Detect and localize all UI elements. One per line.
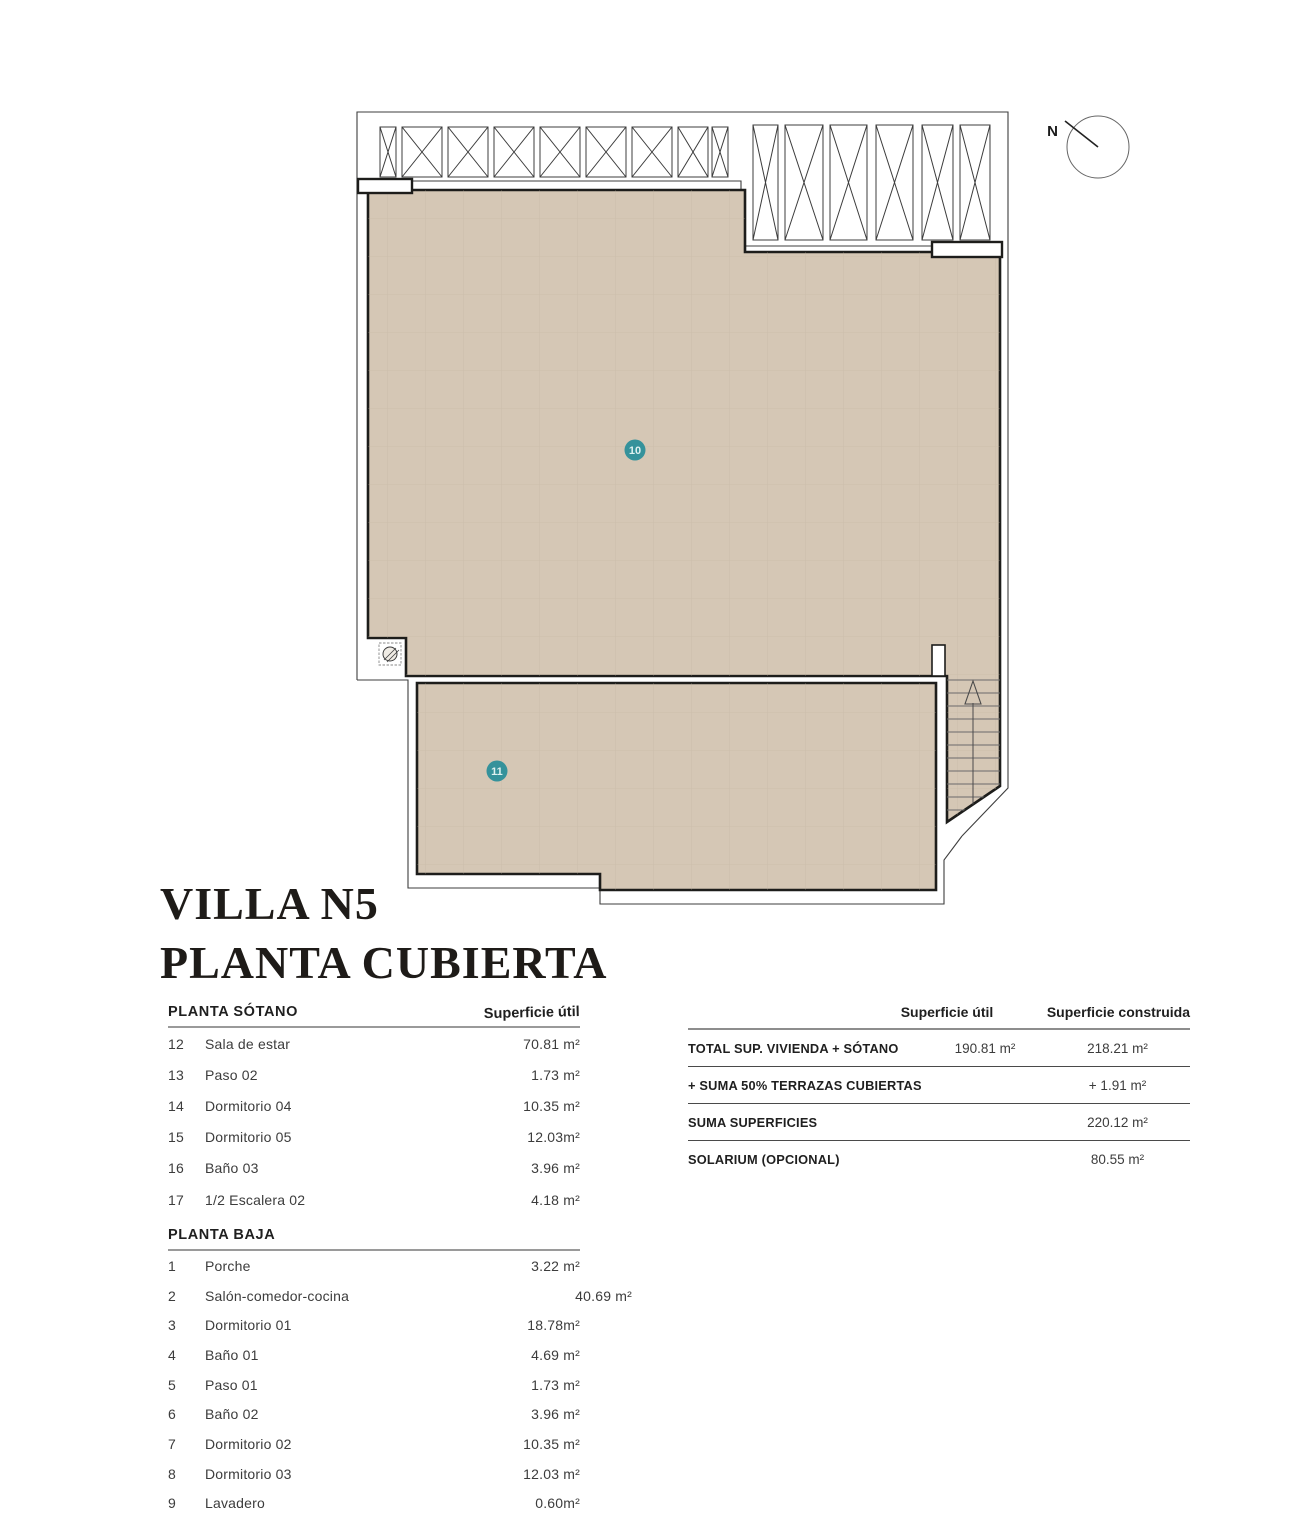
summary-rows: TOTAL SUP. VIVIENDA + SÓTANO 190.81 m² 2… [688,1030,1190,1177]
table-row: 17 1/2 Escalera 02 4.18 m² [168,1184,580,1215]
summary-header-row: Superficie útil Superficie construida [688,1004,1190,1030]
summary-row: SOLARIUM (OPCIONAL) 80.55 m² [688,1141,1190,1177]
summary-superficie-construida: 220.12 m² [1045,1115,1190,1130]
rooms-table: PLANTA SÓTANO Superficie útil 12 Sala de… [168,1004,580,1518]
summary-row: SUMA SUPERFICIES 220.12 m² [688,1104,1190,1141]
room-name: Dormitorio 01 [205,1317,527,1333]
room-number: 1 [168,1258,205,1274]
room-area: 0.60m² [535,1495,580,1511]
table-row: 13 Paso 02 1.73 m² [168,1059,580,1090]
room-name: Dormitorio 04 [205,1098,523,1114]
vent-symbol [379,643,401,665]
summary-superficie-construida: 218.21 m² [1045,1041,1190,1056]
table-row: 4 Baño 01 4.69 m² [168,1340,580,1370]
room-area: 18.78m² [527,1317,580,1333]
room-number: 13 [168,1067,205,1083]
room-area: 4.18 m² [531,1192,580,1208]
room-number: 17 [168,1192,205,1208]
table-row: 9 Lavadero 0.60m² [168,1489,580,1519]
room-name: 1/2 Escalera 02 [205,1192,531,1208]
room-area: 10.35 m² [523,1098,580,1114]
north-label: N [1047,123,1058,140]
room-name: Baño 02 [205,1406,531,1422]
room-area: 3.22 m² [531,1258,580,1274]
table-row: 1 Porche 3.22 m² [168,1251,580,1281]
table-row: 8 Dormitorio 03 12.03 m² [168,1459,580,1489]
summary-label: SOLARIUM (OPCIONAL) [688,1152,925,1167]
pergola-beams-short [380,127,728,177]
room-name: Baño 01 [205,1347,531,1363]
summary-row: TOTAL SUP. VIVIENDA + SÓTANO 190.81 m² 2… [688,1030,1190,1067]
room-area: 1.73 m² [531,1377,580,1393]
floor-plan: 10 11 N [350,105,1150,915]
room-number: 9 [168,1495,205,1511]
page: 10 11 N VILLA N5 PLANTA CUBIERTA PLANTA … [0,0,1310,1536]
summary-label: SUMA SUPERFICIES [688,1115,925,1130]
summary-superficie-util: 190.81 m² [925,1041,1045,1056]
room-area: 1.73 m² [531,1067,580,1083]
table-row: 16 Baño 03 3.96 m² [168,1153,580,1184]
room-area: 12.03 m² [523,1466,580,1482]
table-row: 5 Paso 01 1.73 m² [168,1370,580,1400]
title-line-2: PLANTA CUBIERTA [160,933,607,992]
sotano-rows: 12 Sala de estar 70.81 m² 13 Paso 02 1.7… [168,1028,580,1215]
column-header-superficie-util: Superficie útil [484,1004,580,1022]
room-name: Dormitorio 03 [205,1466,523,1482]
pergola-beams-tall [753,125,990,240]
room-name: Baño 03 [205,1160,531,1176]
plan-title: VILLA N5 PLANTA CUBIERTA [160,874,607,992]
table-row: 12 Sala de estar 70.81 m² [168,1028,580,1059]
room-number: 16 [168,1160,205,1176]
svg-text:11: 11 [491,766,503,778]
table-row: 6 Baño 02 3.96 m² [168,1400,580,1430]
table-row: 15 Dormitorio 05 12.03m² [168,1122,580,1153]
svg-text:10: 10 [629,445,641,457]
table-row: 14 Dormitorio 04 10.35 m² [168,1090,580,1121]
room-area: 10.35 m² [523,1436,580,1452]
sotano-header-row: PLANTA SÓTANO Superficie útil [168,1004,580,1028]
title-line-1: VILLA N5 [160,874,607,933]
room-name: Paso 01 [205,1377,531,1393]
room-number: 5 [168,1377,205,1393]
summary-label: TOTAL SUP. VIVIENDA + SÓTANO [688,1041,925,1056]
room-area: 4.69 m² [531,1347,580,1363]
summary-label: + SUMA 50% TERRAZAS CUBIERTAS [688,1078,925,1093]
room-number: 12 [168,1036,205,1052]
room-number: 14 [168,1098,205,1114]
roof-terrace-11 [417,683,936,890]
wall-step-top-left [358,179,412,193]
room-area: 3.96 m² [531,1406,580,1422]
section-title-baja: PLANTA BAJA [168,1227,275,1243]
room-name: Salón-comedor-cocina [205,1288,575,1304]
room-number: 4 [168,1347,205,1363]
room-name: Paso 02 [205,1067,531,1083]
room-number: 7 [168,1436,205,1452]
area-badge-11: 11 [487,761,508,782]
room-area: 12.03m² [527,1129,580,1145]
room-name: Lavadero [205,1495,535,1511]
room-area: 40.69 m² [575,1288,632,1304]
room-area: 3.96 m² [531,1160,580,1176]
room-area: 70.81 m² [523,1036,580,1052]
table-row: 3 Dormitorio 01 18.78m² [168,1311,580,1341]
room-name: Dormitorio 05 [205,1129,527,1145]
wall-step-top-right [932,242,1002,257]
room-number: 3 [168,1317,205,1333]
north-indicator: N [1047,116,1129,178]
room-number: 15 [168,1129,205,1145]
room-number: 2 [168,1288,205,1304]
table-row: 7 Dormitorio 02 10.35 m² [168,1429,580,1459]
room-number: 8 [168,1466,205,1482]
summary-superficie-construida: + 1.91 m² [1045,1078,1190,1093]
summary-superficie-construida: 80.55 m² [1045,1152,1190,1167]
room-name: Porche [205,1258,531,1274]
area-badge-10: 10 [625,440,646,461]
room-name: Sala de estar [205,1036,523,1052]
section-title-sotano: PLANTA SÓTANO [168,1004,298,1020]
summary-table: Superficie útil Superficie construida TO… [688,1004,1190,1177]
table-row: 2 Salón-comedor-cocina 40.69 m² [168,1281,580,1311]
room-number: 6 [168,1406,205,1422]
column-header-superficie-util: Superficie útil [872,1004,1022,1020]
column-header-superficie-construida: Superficie construida [1022,1004,1190,1020]
wall-slot [932,645,945,676]
baja-rows: 1 Porche 3.22 m² 2 Salón-comedor-cocina … [168,1251,580,1518]
room-name: Dormitorio 02 [205,1436,523,1452]
baja-header-row: PLANTA BAJA [168,1227,580,1251]
summary-row: + SUMA 50% TERRAZAS CUBIERTAS + 1.91 m² [688,1067,1190,1104]
